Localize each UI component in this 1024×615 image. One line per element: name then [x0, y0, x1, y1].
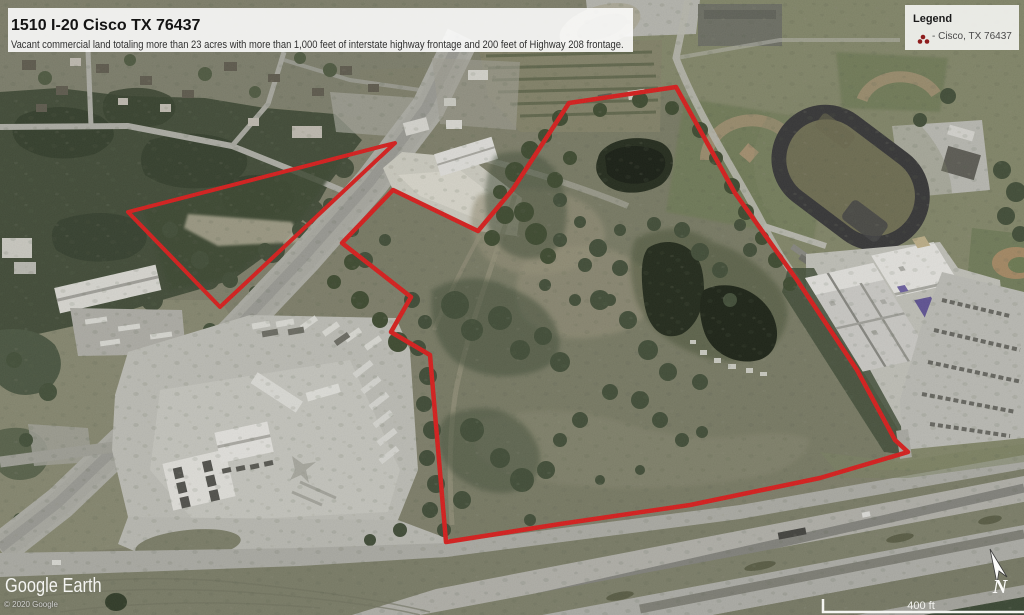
svg-text:400 ft: 400 ft [907, 600, 935, 612]
svg-text:N: N [992, 576, 1009, 598]
